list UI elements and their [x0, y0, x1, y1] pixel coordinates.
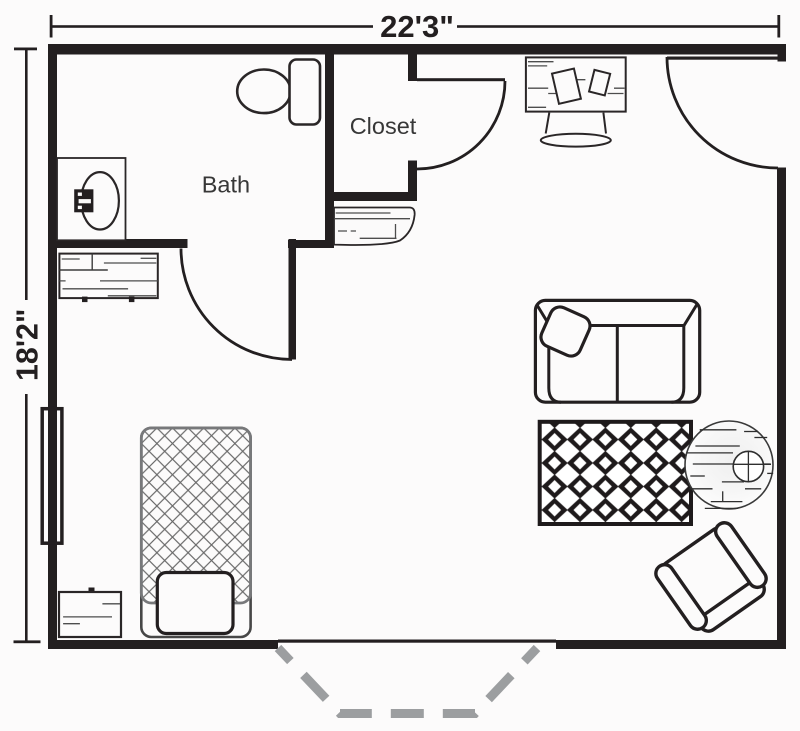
- svg-text:Closet: Closet: [350, 113, 417, 139]
- svg-text:Bath: Bath: [202, 172, 250, 198]
- svg-text:18'2": 18'2": [9, 309, 44, 381]
- svg-text:22'3": 22'3": [380, 9, 454, 44]
